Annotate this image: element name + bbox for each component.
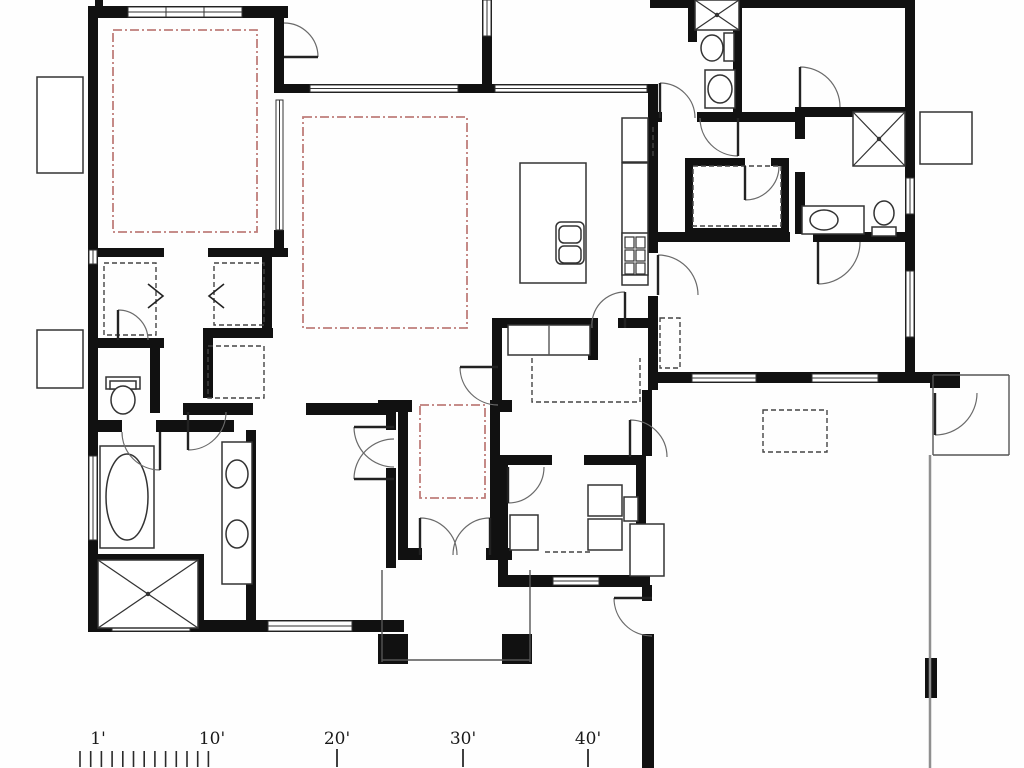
dashed-detail-line: [532, 358, 640, 402]
fixture: [37, 77, 83, 173]
door-swing-arc: [420, 518, 457, 555]
wall-segment: [642, 634, 654, 768]
scale-label: 10': [199, 729, 225, 749]
door-swing-arc: [658, 255, 698, 295]
kitchen-sink: [559, 226, 581, 243]
door-swing-arc: [354, 427, 394, 467]
fixture: [724, 33, 734, 61]
shower-drain: [715, 13, 719, 17]
door-swing-arc: [614, 598, 652, 636]
fixture: [588, 519, 622, 550]
floor-plan-svg: 1'10'20'30'40': [0, 0, 1024, 768]
wall-segment: [795, 117, 805, 139]
door-swing-arc: [800, 67, 840, 107]
door-swing-arc: [660, 83, 695, 118]
dashed-detail-rect: [104, 263, 156, 335]
fixture: [588, 485, 622, 516]
wall-segment: [685, 228, 789, 236]
dashed-detail-rect: [693, 166, 781, 226]
door-swing-arc: [745, 166, 779, 200]
plumbing-fixture-basin: [226, 520, 248, 548]
plumbing-fixture-basin: [226, 460, 248, 488]
fixture: [510, 515, 538, 550]
plumbing-fixture-basin: [111, 386, 135, 414]
fixture: [872, 227, 896, 236]
scale-label: 30': [450, 729, 476, 749]
fixture: [630, 524, 664, 576]
wall-segment: [398, 548, 422, 560]
wall-segment: [274, 230, 284, 257]
fixture: [37, 330, 83, 388]
wall-segment: [386, 468, 396, 568]
wall-segment: [203, 328, 273, 338]
dashed-detail-rect: [214, 263, 264, 325]
fixture: [624, 497, 638, 521]
plumbing-fixture-basin: [810, 210, 838, 230]
ceiling-outline-red: [113, 30, 257, 232]
wall-segment: [685, 158, 693, 236]
wall-segment: [98, 248, 164, 257]
fixtures-layer: [37, 0, 972, 698]
wall-segment: [398, 412, 408, 558]
shower-drain: [877, 137, 881, 141]
door-swing-arc: [818, 242, 860, 284]
kitchen-sink: [559, 246, 581, 263]
wall-segment: [98, 420, 122, 432]
plumbing-fixture-basin: [874, 201, 894, 225]
fixture: [622, 233, 648, 275]
dashed-detail-rect: [763, 410, 827, 452]
wall-segment: [150, 345, 160, 413]
scale-label: 40': [575, 729, 601, 749]
wall-segment: [685, 158, 745, 166]
plumbing-fixture-basin: [701, 35, 723, 61]
plumbing-fixture-basin: [106, 454, 148, 540]
fixture: [622, 118, 648, 162]
floor-plan: 1'10'20'30'40': [0, 0, 1024, 768]
scale-label: 20': [324, 729, 350, 749]
wall-segment: [183, 403, 253, 415]
dashed-detail-rect: [660, 318, 680, 368]
dashed-detail-rect: [208, 346, 264, 398]
door-swing-arc: [935, 393, 977, 435]
door-swing-arc: [700, 118, 738, 156]
wall-segment: [306, 403, 388, 415]
wall-segment: [156, 420, 234, 432]
wall-segment: [95, 0, 103, 8]
door-swing-arc: [508, 467, 544, 503]
fixture: [920, 112, 972, 164]
door-swing-arc: [453, 518, 490, 555]
ceiling-outline-red: [420, 405, 485, 498]
site-lines-layer: [382, 325, 1009, 768]
scale-label: 1': [90, 729, 106, 749]
scale-bar: 1'10'20'30'40': [80, 729, 601, 767]
wall-segment: [378, 400, 412, 412]
door-swing-arc: [284, 23, 318, 57]
ceiling-outline-red: [303, 117, 467, 328]
plumbing-fixture-basin: [708, 75, 732, 103]
wall-segment: [781, 158, 789, 236]
wall-segment: [492, 318, 502, 406]
wall-segment: [498, 455, 508, 585]
wall-segment: [274, 18, 284, 86]
bifold-door: [209, 284, 224, 308]
wall-segment: [697, 112, 797, 122]
shower-drain: [146, 592, 150, 596]
